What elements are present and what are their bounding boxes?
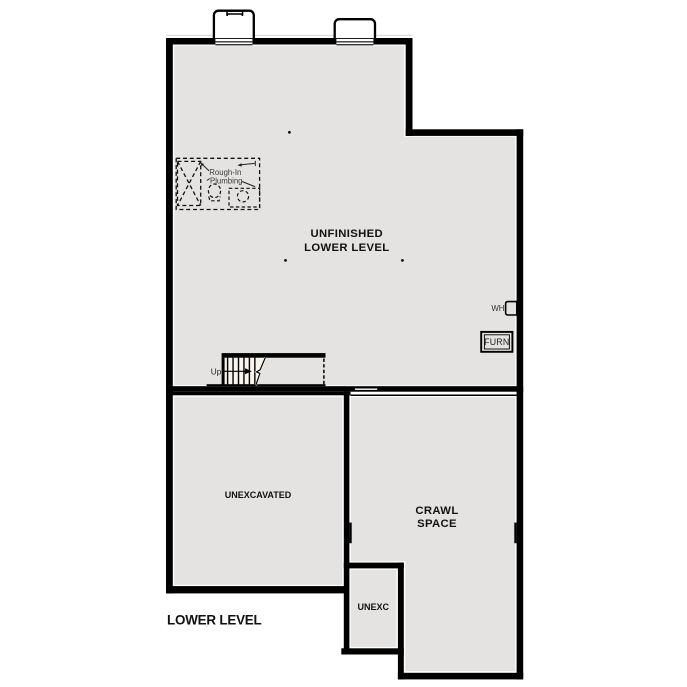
svg-text:Plumbing: Plumbing: [210, 176, 243, 185]
svg-text:UNEXCAVATED: UNEXCAVATED: [225, 490, 292, 500]
svg-text:UNEXC: UNEXC: [358, 602, 390, 612]
svg-text:UNFINISHED: UNFINISHED: [311, 228, 384, 240]
svg-text:LOWER LEVEL: LOWER LEVEL: [304, 242, 389, 254]
svg-text:Up: Up: [211, 367, 222, 376]
svg-text:CRAWL: CRAWL: [415, 505, 458, 517]
svg-text:SPACE: SPACE: [417, 518, 457, 530]
svg-text:WH: WH: [491, 304, 504, 313]
svg-text:LOWER LEVEL: LOWER LEVEL: [167, 613, 262, 628]
svg-text:FURN: FURN: [484, 337, 509, 347]
